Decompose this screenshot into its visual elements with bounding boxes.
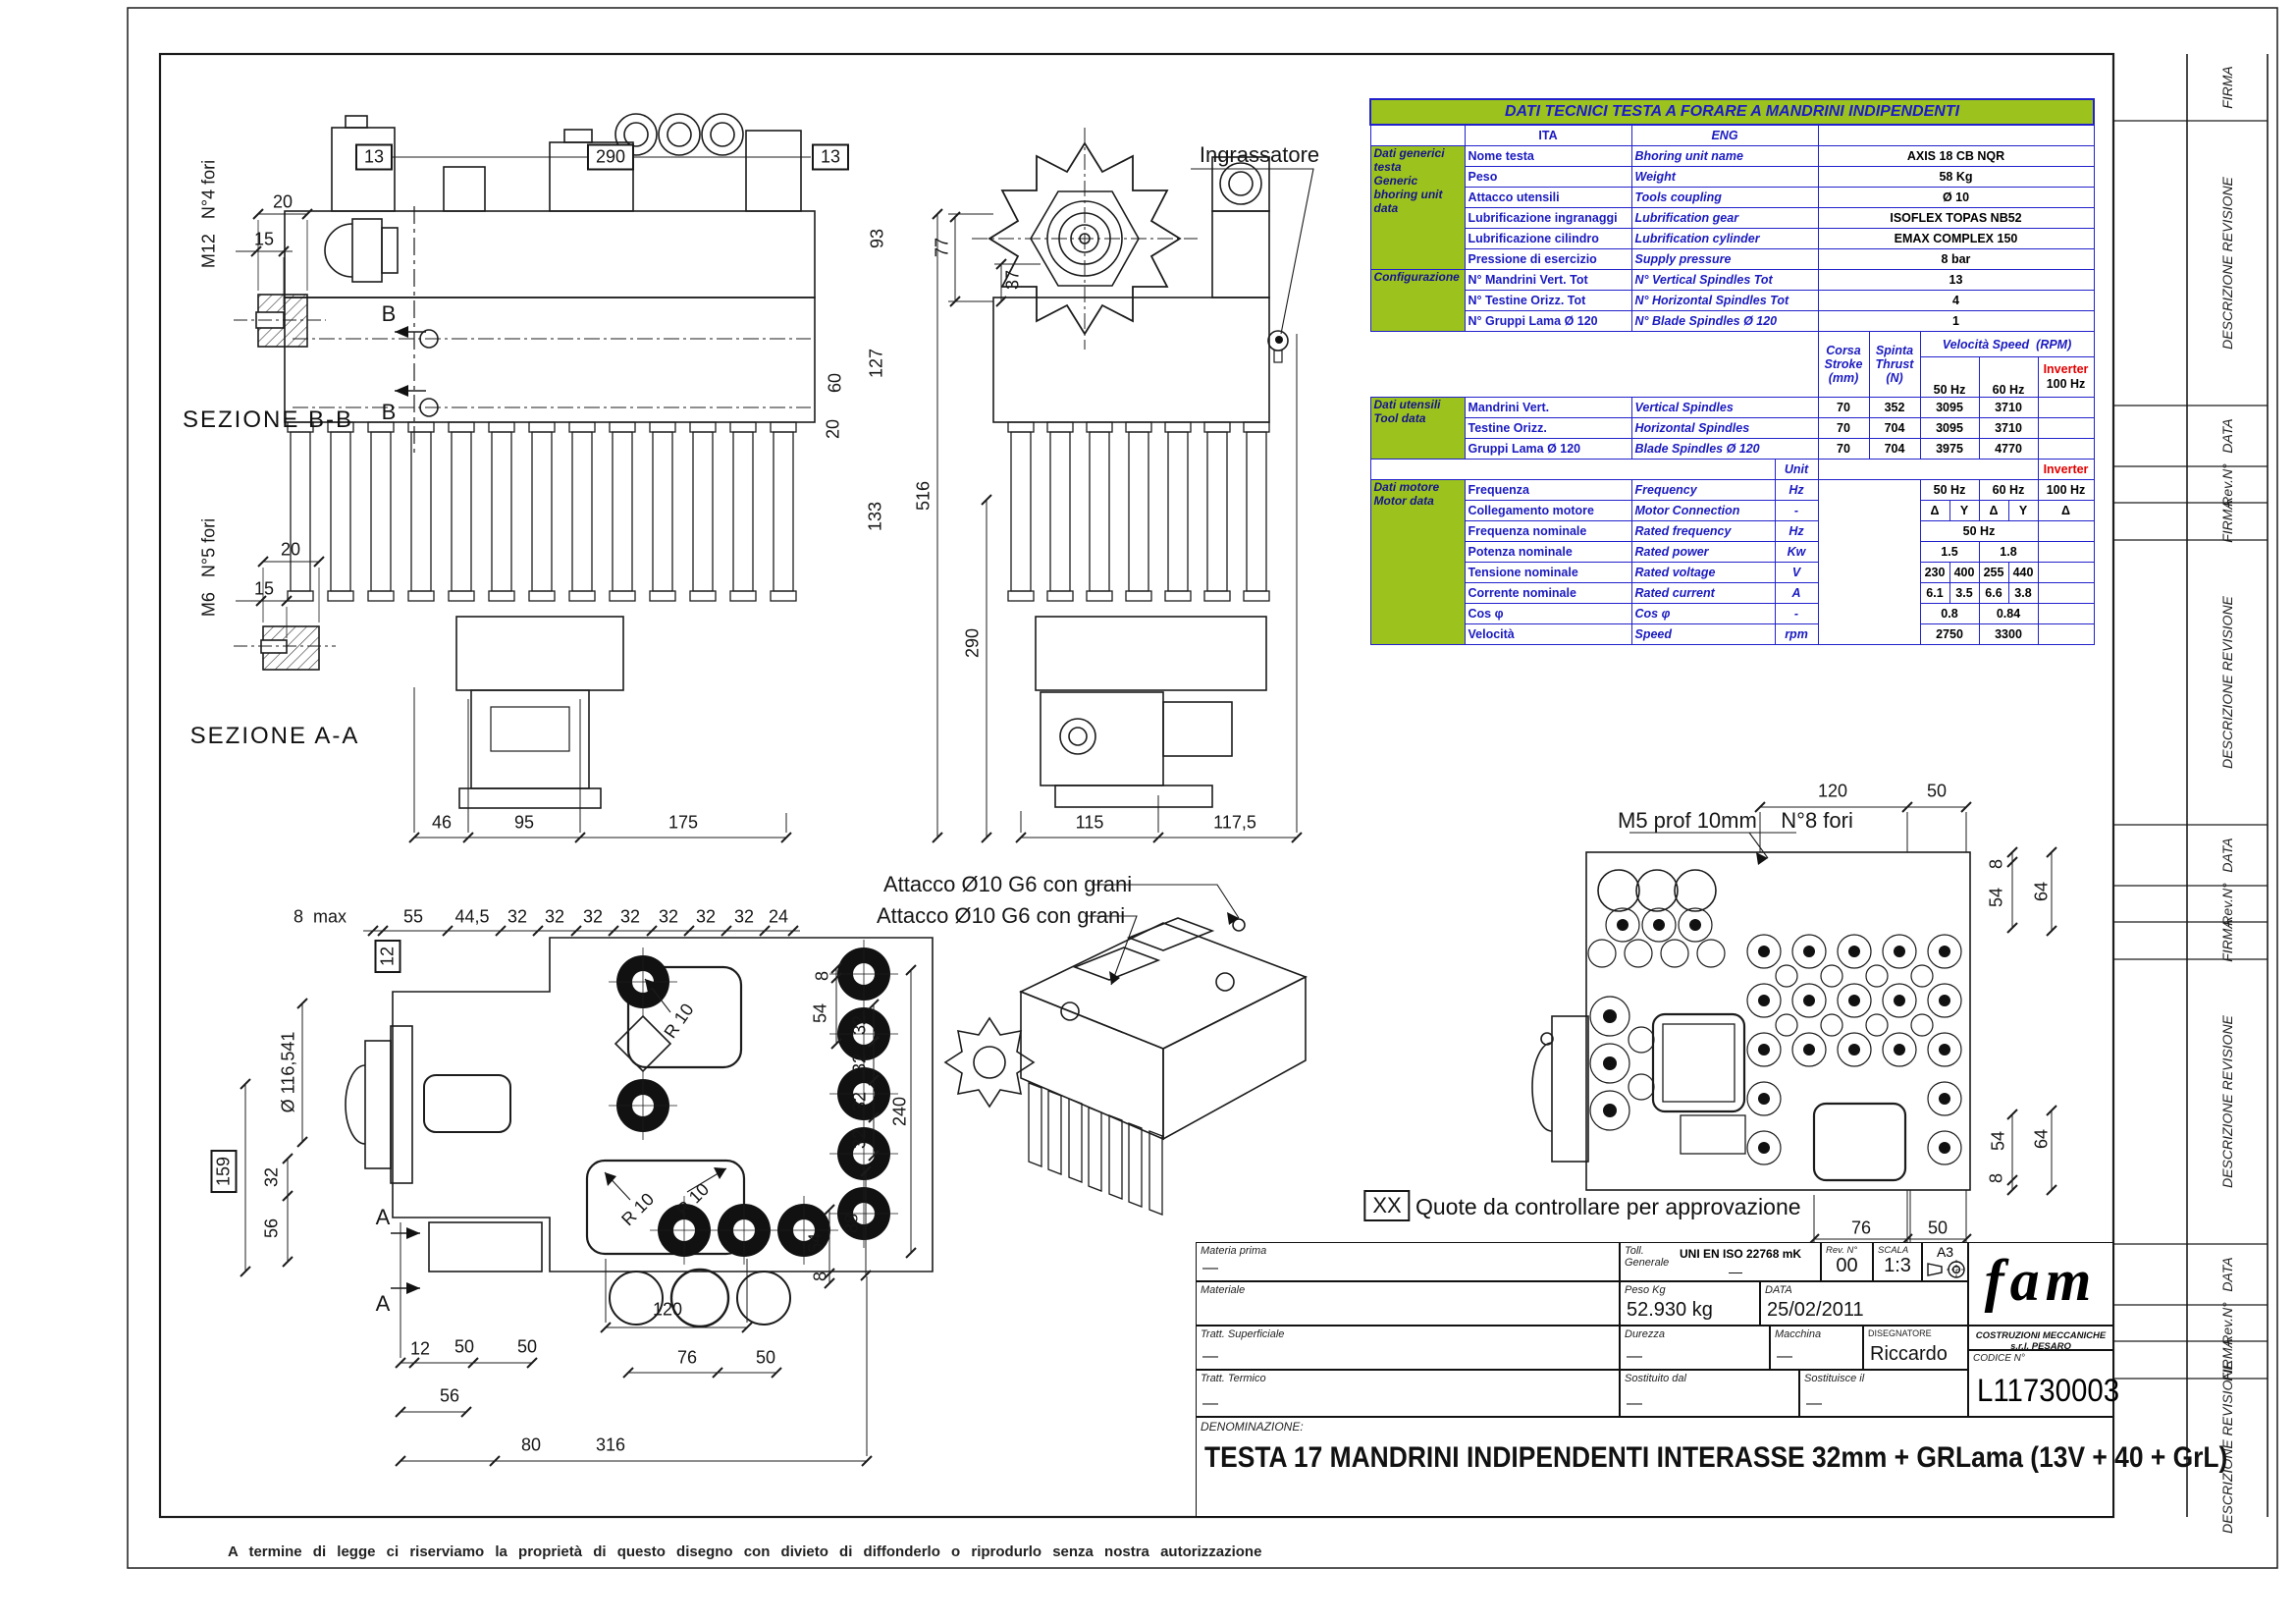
dim-top-64a: 64 bbox=[2032, 882, 2053, 901]
ingrassatore-label: Ingrassatore bbox=[1200, 142, 1319, 168]
dim-front-20: 20 bbox=[824, 419, 844, 439]
dim-bottom-32-left: 32 bbox=[262, 1167, 283, 1187]
revstrip-descrizione-1: DESCRIZIONE REVISIONE bbox=[2219, 177, 2235, 350]
dim-front-13-left: 13 bbox=[355, 144, 393, 171]
dim-bottom-76: 76 bbox=[677, 1348, 697, 1369]
dim-top-54a: 54 bbox=[1987, 888, 2007, 907]
dim-bottom-12-box: 12 bbox=[375, 940, 401, 973]
section-aa-detail bbox=[234, 562, 336, 670]
dim-bottom-24: 24 bbox=[769, 907, 788, 928]
dim-bottom-12: 12 bbox=[410, 1339, 430, 1360]
dim-top-8a: 8 bbox=[1987, 859, 2007, 869]
section-aa-title: SEZIONE A-A bbox=[190, 723, 360, 750]
scala-cell: SCALA 1:3 bbox=[1873, 1242, 1922, 1281]
dim-bottom-32-r4: 32 bbox=[850, 1129, 871, 1149]
dim-front-133: 133 bbox=[866, 502, 886, 531]
dim-top-64b: 64 bbox=[2032, 1129, 2053, 1149]
dim-top-120: 120 bbox=[1818, 782, 1847, 802]
dim-bottom-54-right: 54 bbox=[811, 1003, 831, 1023]
mid-velocita: Velocità Speed bbox=[1943, 338, 2029, 352]
dim-bottom-dia: Ø 116,541 bbox=[279, 1032, 299, 1113]
col-eng: ENG bbox=[1631, 125, 1818, 146]
dim-bottom-32: 32 bbox=[583, 907, 603, 928]
dim-bottom-56: 56 bbox=[440, 1386, 459, 1407]
unit-header: Unit bbox=[1775, 460, 1818, 480]
logo-cell: fam bbox=[1968, 1242, 2113, 1326]
dim-bb-15: 15 bbox=[254, 230, 274, 250]
title-block: Materia prima — Toll. Generale UNI EN IS… bbox=[1196, 1242, 2113, 1517]
dim-bottom-316: 316 bbox=[596, 1435, 625, 1456]
m5-holes-label: M5 prof 10mm N°8 fori bbox=[1618, 808, 1853, 834]
rev-cell: Rev. N° 00 bbox=[1821, 1242, 1873, 1281]
tratt-termico-cell: Tratt. Termico — bbox=[1196, 1370, 1620, 1417]
mid-50hz: 50 Hz bbox=[1920, 357, 1979, 398]
tolleranze-cell: Toll. Generale UNI EN ISO 22768 mK — bbox=[1620, 1242, 1821, 1281]
disegnatore-label: DISEGNATORE bbox=[1868, 1328, 1932, 1338]
tratt-superficiale-label: Tratt. Superficiale bbox=[1201, 1328, 1284, 1340]
dim-bottom-50a: 50 bbox=[454, 1337, 474, 1358]
attacco-label-1: Attacco Ø10 G6 con grani bbox=[883, 872, 1132, 897]
dim-front-175: 175 bbox=[668, 813, 698, 834]
materia-prima-value: — bbox=[1202, 1260, 1218, 1277]
data-label: DATA bbox=[1765, 1284, 1792, 1296]
section-letter-a1: A bbox=[376, 1205, 391, 1230]
dim-bottom-50b: 50 bbox=[517, 1337, 537, 1358]
denominazione-label: DENOMINAZIONE: bbox=[1201, 1420, 1304, 1434]
dim-top-54b: 54 bbox=[1989, 1131, 2009, 1151]
dim-top-8b: 8 bbox=[1987, 1173, 2007, 1183]
tratt-termico-label: Tratt. Termico bbox=[1201, 1373, 1266, 1384]
rev-value: 00 bbox=[1822, 1255, 1872, 1277]
dim-bottom-32: 32 bbox=[659, 907, 678, 928]
toll-label: Toll. Generale bbox=[1625, 1245, 1669, 1269]
projection-symbol-icon bbox=[1925, 1260, 1968, 1279]
codice-value: L11730003 bbox=[1977, 1373, 2119, 1409]
dim-bottom-32-r1: 32 bbox=[850, 1015, 871, 1035]
dim-bottom-55: 55 bbox=[403, 907, 423, 928]
dim-bottom-50c: 50 bbox=[756, 1348, 775, 1369]
dim-bb-20: 20 bbox=[273, 192, 293, 213]
dim-bottom-88: 88 bbox=[842, 1214, 863, 1233]
table-title-row: DATI TECNICI TESTA A FORARE A MANDRINI I… bbox=[1370, 99, 2094, 125]
disegnatore-cell: DISEGNATORE Riccardo bbox=[1863, 1326, 1968, 1370]
materiale-cell: Materiale bbox=[1196, 1281, 1620, 1326]
isometric-view bbox=[945, 885, 1306, 1215]
dim-bottom-32-r3: 32 bbox=[850, 1092, 871, 1111]
dim-side-37: 37 bbox=[1003, 270, 1024, 290]
dim-bottom-80: 80 bbox=[521, 1435, 541, 1456]
dim-aa-20: 20 bbox=[281, 540, 300, 561]
dim-front-127: 127 bbox=[867, 349, 887, 378]
attacco-label-2: Attacco Ø10 G6 con grani bbox=[877, 903, 1125, 929]
revstrip-data-2: DATA bbox=[2219, 838, 2235, 872]
data-cell: DATA 25/02/2011 bbox=[1760, 1281, 1968, 1326]
company-cell: COSTRUZIONI MECCANICHE s.r.l. PESARO bbox=[1968, 1326, 2113, 1350]
dim-bottom-8-b: 8 bbox=[811, 1272, 831, 1281]
section-bb-title: SEZIONE B-B bbox=[183, 406, 353, 434]
dim-top-50a: 50 bbox=[1927, 782, 1947, 802]
dim-side-516: 516 bbox=[914, 481, 934, 511]
sostituito-dal-cell: Sostituito dal — bbox=[1620, 1370, 1799, 1417]
dim-bottom-32: 32 bbox=[620, 907, 640, 928]
xx-note-box: XX bbox=[1363, 1190, 1410, 1221]
toll-dash: — bbox=[1729, 1264, 1742, 1279]
macchina-value: — bbox=[1777, 1348, 1792, 1366]
section-bb-detail bbox=[234, 214, 326, 347]
dim-front-93: 93 bbox=[868, 229, 888, 248]
dim-bottom-240: 240 bbox=[890, 1097, 911, 1126]
dim-bottom-32: 32 bbox=[545, 907, 564, 928]
dim-front-290: 290 bbox=[587, 144, 634, 171]
materiale-label: Materiale bbox=[1201, 1284, 1245, 1296]
dim-bottom-8-right: 8 bbox=[813, 971, 833, 981]
disegnatore-value: Riccardo bbox=[1870, 1343, 1948, 1366]
detail-bb-thread-label: M12 N°4 fori bbox=[199, 160, 220, 268]
section-letter-b2: B bbox=[382, 400, 397, 425]
section-general: Dati generici testa Generic bhoring unit… bbox=[1370, 146, 1465, 270]
company-name: COSTRUZIONI MECCANICHE s.r.l. PESARO bbox=[1969, 1330, 2112, 1352]
dim-top-76: 76 bbox=[1851, 1218, 1871, 1239]
section-motor: Dati motore Motor data bbox=[1370, 480, 1465, 645]
mid-rpm: (RPM) bbox=[2036, 338, 2071, 352]
mid-100hz: 100 Hz bbox=[2042, 377, 2091, 393]
tratt-superficiale-cell: Tratt. Superficiale — bbox=[1196, 1326, 1620, 1370]
dim-side-290: 290 bbox=[963, 628, 984, 658]
durezza-cell: Durezza — bbox=[1620, 1326, 1770, 1370]
peso-label: Peso Kg bbox=[1625, 1284, 1666, 1296]
dim-bottom-32: 32 bbox=[507, 907, 527, 928]
dim-front-60: 60 bbox=[826, 373, 846, 393]
dim-bottom-8max: 8 max bbox=[294, 907, 347, 928]
revstrip-firma-3: FIRMA bbox=[2219, 919, 2235, 962]
dim-front-13-right: 13 bbox=[812, 144, 849, 171]
codice-label: CODICE N° bbox=[1973, 1353, 2025, 1364]
sostituisce-il-cell: Sostituisce il — bbox=[1799, 1370, 1968, 1417]
dim-bottom-159-box: 159 bbox=[211, 1150, 238, 1193]
macchina-cell: Macchina — bbox=[1770, 1326, 1863, 1370]
dim-aa-15: 15 bbox=[254, 579, 274, 600]
peso-cell: Peso Kg 52.930 kg bbox=[1620, 1281, 1760, 1326]
sostituisce-il-value: — bbox=[1806, 1395, 1822, 1413]
approval-note: Quote da controllare per approvazione bbox=[1415, 1194, 1801, 1220]
detail-aa-thread-label: M6 N°5 fori bbox=[199, 518, 220, 617]
durezza-label: Durezza bbox=[1625, 1328, 1665, 1340]
fam-logo: fam bbox=[1969, 1247, 2112, 1315]
dim-bottom-120: 120 bbox=[653, 1300, 682, 1321]
side-view bbox=[937, 128, 1313, 838]
toll-value: UNI EN ISO 22768 mK bbox=[1680, 1247, 1801, 1261]
mid-inverter: Inverter bbox=[2042, 362, 2091, 378]
col-ita: ITA bbox=[1465, 125, 1631, 146]
dim-side-115: 115 bbox=[1076, 813, 1104, 834]
sostituisce-il-label: Sostituisce il bbox=[1804, 1373, 1864, 1384]
mid-60hz: 60 Hz bbox=[1979, 357, 2038, 398]
dim-bottom-44-5: 44,5 bbox=[454, 907, 489, 928]
dim-side-77: 77 bbox=[933, 238, 953, 257]
sostituito-dal-label: Sostituito dal bbox=[1625, 1373, 1686, 1384]
technical-data-table: DATI TECNICI TESTA A FORARE A MANDRINI I… bbox=[1369, 98, 2095, 645]
mid-corsa: Corsa Stroke (mm) bbox=[1818, 332, 1869, 398]
scala-value: 1:3 bbox=[1874, 1255, 1921, 1277]
dim-bottom-32-r2: 32 bbox=[850, 1054, 871, 1073]
materia-prima-label: Materia prima bbox=[1201, 1245, 1266, 1257]
dim-bottom-32: 32 bbox=[734, 907, 754, 928]
dim-bottom-54-b: 54 bbox=[806, 1233, 827, 1253]
format-cell: A3 bbox=[1922, 1242, 1968, 1281]
revstrip-firma-2: FIRMA bbox=[2219, 500, 2235, 543]
denominazione-cell: DENOMINAZIONE: TESTA 17 MANDRINI INDIPEN… bbox=[1196, 1417, 2113, 1517]
codice-cell: CODICE N° L11730003 bbox=[1968, 1350, 2113, 1417]
materia-prima-cell: Materia prima — bbox=[1196, 1242, 1620, 1281]
dim-front-46: 46 bbox=[432, 813, 452, 834]
revstrip-data-1: DATA bbox=[2219, 418, 2235, 453]
dim-side-117-5: 117,5 bbox=[1213, 813, 1256, 834]
revstrip-descrizione-2: DESCRIZIONE REVISIONE bbox=[2219, 596, 2235, 769]
durezza-value: — bbox=[1627, 1348, 1642, 1366]
unit-inverter: Inverter bbox=[2038, 460, 2094, 480]
format-value: A3 bbox=[1923, 1244, 1967, 1260]
sostituito-dal-value: — bbox=[1627, 1395, 1642, 1413]
section-config: Configurazione bbox=[1370, 270, 1465, 332]
revstrip-descrizione-3: DESCRIZIONE REVISIONE bbox=[2219, 1015, 2235, 1188]
revstrip-data-3: DATA bbox=[2219, 1257, 2235, 1291]
revstrip-firma-1: FIRMA bbox=[2219, 66, 2235, 109]
dim-bottom-32: 32 bbox=[696, 907, 716, 928]
peso-value: 52.930 kg bbox=[1627, 1299, 1713, 1322]
section-tools: Dati utensili Tool data bbox=[1370, 398, 1465, 460]
tratt-superficiale-value: — bbox=[1202, 1348, 1218, 1366]
legal-disclaimer: A termine di legge ci riserviamo la prop… bbox=[228, 1543, 1261, 1560]
dim-bottom-56-left: 56 bbox=[262, 1218, 283, 1238]
table-title: DATI TECNICI TESTA A FORARE A MANDRINI I… bbox=[1370, 99, 2094, 125]
denominazione-value: TESTA 17 MANDRINI INDIPENDENTI INTERASSE… bbox=[1204, 1441, 2227, 1475]
dim-top-50b: 50 bbox=[1928, 1218, 1948, 1239]
mid-spinta: Spinta Thrust (N) bbox=[1869, 332, 1920, 398]
section-letter-b1: B bbox=[382, 301, 397, 327]
dim-front-95: 95 bbox=[514, 813, 534, 834]
tratt-termico-value: — bbox=[1202, 1395, 1218, 1413]
front-view bbox=[285, 114, 815, 838]
macchina-label: Macchina bbox=[1775, 1328, 1821, 1340]
section-letter-a2: A bbox=[376, 1291, 391, 1317]
drawing-sheet: M12 N°4 fori 20 15 SEZIONE B-B M6 N°5 fo… bbox=[0, 0, 2296, 1624]
data-value: 25/02/2011 bbox=[1767, 1299, 1864, 1322]
